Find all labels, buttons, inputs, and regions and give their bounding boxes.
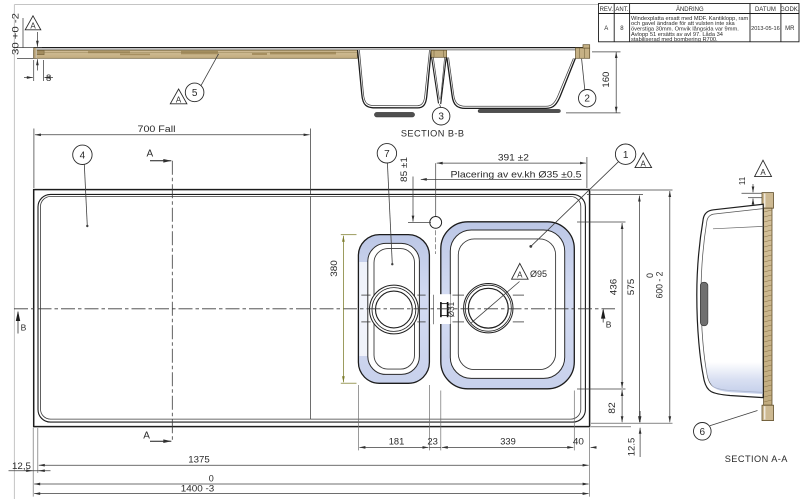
svg-text:A: A [517,271,523,280]
svg-text:436: 436 [608,279,618,296]
svg-text:0: 0 [645,273,655,278]
svg-text:Ø95: Ø95 [530,269,547,279]
svg-text:5: 5 [192,88,198,99]
svg-text:181: 181 [389,436,405,446]
svg-text:A: A [147,149,154,160]
svg-text:stabiliserad med bombering R70: stabiliserad med bombering R700. [631,37,718,43]
svg-text:8: 8 [620,26,624,32]
svg-text:23: 23 [427,436,438,446]
svg-text:Placering av ev.kh Ø35 ±0.5: Placering av ev.kh Ø35 ±0.5 [451,169,582,179]
svg-text:B: B [606,320,612,330]
svg-text:MR: MR [785,26,795,32]
svg-text:40: 40 [573,436,584,446]
svg-text:339: 339 [500,436,516,446]
svg-text:85 ±1: 85 ±1 [399,157,409,182]
svg-text:1400 -3: 1400 -3 [181,483,215,493]
svg-text:30 +0 -2: 30 +0 -2 [11,13,21,55]
svg-text:DATUM: DATUM [755,7,776,13]
svg-text:Ø31: Ø31 [447,301,456,317]
svg-text:A: A [30,22,36,31]
svg-text:SECTION A-A: SECTION A-A [725,454,789,464]
svg-text:0: 0 [209,474,214,484]
svg-text:3: 3 [438,112,444,123]
svg-text:82: 82 [607,402,617,414]
svg-text:4: 4 [80,150,86,161]
svg-text:1375: 1375 [188,455,210,465]
svg-text:A: A [143,431,150,442]
svg-text:700 Fall: 700 Fall [138,124,176,134]
svg-text:A: A [641,159,647,168]
svg-text:A: A [176,96,182,105]
svg-text:A: A [604,26,608,32]
svg-text:1: 1 [623,150,629,161]
svg-text:B: B [21,323,27,333]
svg-text:12,5: 12,5 [12,461,31,471]
svg-text:8: 8 [46,73,51,84]
svg-text:ÄNDRING: ÄNDRING [676,6,704,13]
svg-text:11: 11 [738,176,747,185]
svg-text:575: 575 [626,279,636,296]
svg-text:7: 7 [384,149,390,160]
svg-text:160: 160 [601,72,611,88]
svg-text:REV.: REV. [600,7,614,13]
svg-text:6: 6 [700,427,706,438]
svg-text:A: A [760,168,766,177]
svg-text:ANT.: ANT. [615,7,628,13]
svg-text:2: 2 [584,94,590,105]
svg-text:391 ±2: 391 ±2 [498,152,529,162]
svg-text:380: 380 [329,260,339,277]
svg-text:12.5: 12.5 [627,438,637,457]
svg-text:GODK.: GODK. [780,7,800,13]
svg-text:2013-05-16: 2013-05-16 [751,26,780,32]
svg-text:600 - 2: 600 - 2 [655,272,665,299]
svg-text:SECTION B-B: SECTION B-B [401,128,465,138]
